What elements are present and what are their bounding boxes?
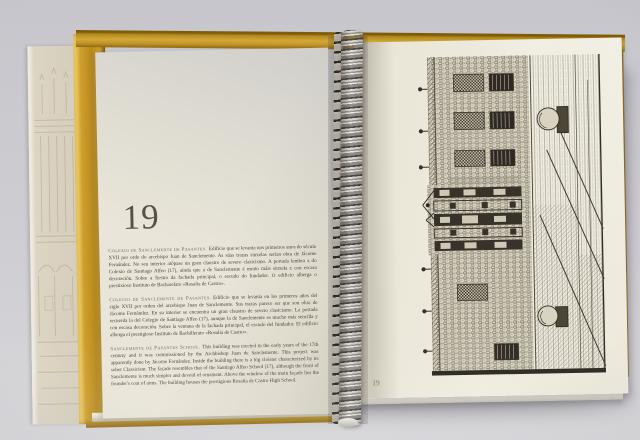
spiral-coil <box>339 30 363 426</box>
paragraph-english: Sanclemente de Pasantes School.This buil… <box>110 342 319 388</box>
spiral-binding <box>332 30 364 426</box>
spiral-endcap <box>338 418 358 427</box>
facade-engraving-drawing <box>417 54 611 380</box>
photo-of-open-spiral-book: { "book": { "left_page": { "chapter_numb… <box>0 0 640 440</box>
paragraph-galician: Colexio de Sanclemente de Pasantes.Edifi… <box>108 244 317 290</box>
page-number: 19 <box>372 378 380 387</box>
right-page: 19 <box>354 37 629 398</box>
chapter-number: 19 <box>122 199 160 235</box>
paragraph-spanish: Colegio de Sanclemente de Pasantes.Edifi… <box>109 293 318 339</box>
left-page: 19 Colexio de Sanclemente de Pasantes.Ed… <box>95 48 336 419</box>
facade-engraving <box>417 54 611 380</box>
text-block: Colexio de Sanclemente de Pasantes.Edifi… <box>108 244 319 395</box>
